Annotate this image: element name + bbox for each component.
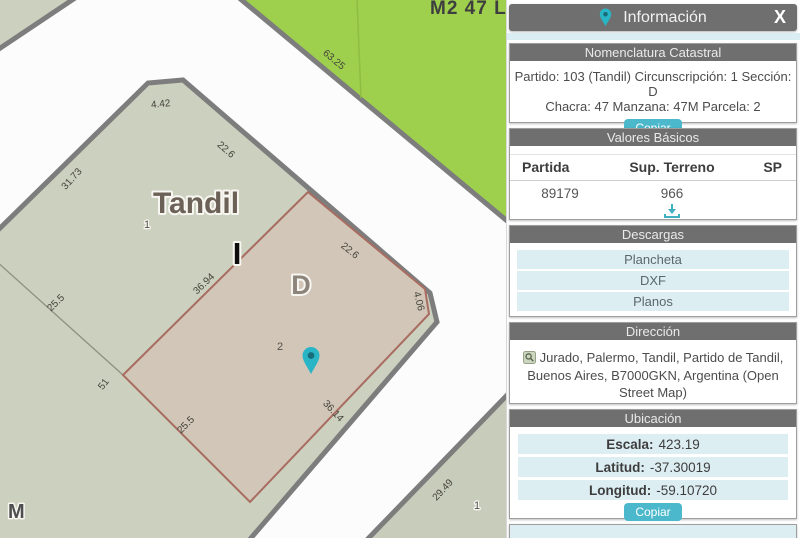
section-next-fragment [509, 524, 797, 538]
section-valores: Valores Básicos Partida Sup. Terreno SP … [509, 128, 797, 220]
dim-label-4-42: 4.42 [150, 98, 171, 111]
nomenclatura-line-1: Partido: 103 (Tandil) Circunscripción: 1… [510, 69, 796, 99]
panel-titlebar: Información X [509, 4, 797, 31]
column-partida: Partida [510, 159, 610, 175]
longitude-label: Longitud: [589, 483, 651, 498]
valores-header-row: Partida Sup. Terreno SP [510, 154, 796, 181]
partida-value: 89179 [510, 186, 610, 201]
parcel-number-selected: 2 [277, 341, 283, 353]
section-direccion: Dirección Jurado, Palermo, Tandil, Parti… [509, 322, 797, 404]
panel-title: Información [623, 9, 707, 27]
block-letter-label: I [233, 236, 242, 271]
close-button[interactable]: X [771, 7, 789, 28]
panel-top-strip [507, 33, 800, 40]
latitude-label: Latitud: [595, 460, 645, 475]
section-ubicacion: Ubicación Escala: 423.19 Latitud: -37.30… [509, 409, 797, 519]
latitude-value: -37.30019 [650, 460, 711, 475]
block-top-label: M2 47 L [430, 0, 507, 19]
copy-coordinates-button[interactable]: Copiar [624, 503, 681, 521]
parcel-number-south-block: 1 [474, 500, 480, 512]
download-icon[interactable] [664, 204, 680, 218]
section-direccion-header: Dirección [510, 323, 796, 340]
city-label: Tandil [153, 187, 239, 220]
column-sp: SP [734, 159, 796, 175]
scale-value: 423.19 [659, 437, 700, 452]
scale-row: Escala: 423.19 [518, 434, 788, 454]
cadastral-map-app: 63.25 4.42 22.6 31.73 36.94 22.6 4.06 36… [0, 0, 800, 538]
address-text: Jurado, Palermo, Tandil, Partido de Tand… [527, 350, 783, 400]
section-letter-label: D [291, 270, 311, 300]
nomenclatura-line-2: Chacra: 47 Manzana: 47M Parcela: 2 [510, 99, 796, 114]
corner-letter-label: M [8, 501, 25, 523]
valores-value-row: 89179 966 [510, 186, 796, 201]
download-planos[interactable]: Planos [517, 292, 789, 311]
section-descargas: Descargas Plancheta DXF Planos [509, 225, 797, 317]
address-search-icon [523, 351, 536, 364]
longitude-value: -59.10720 [656, 483, 717, 498]
longitude-row: Longitud: -59.10720 [518, 480, 788, 500]
section-nomenclatura-header: Nomenclatura Catastral [510, 44, 796, 61]
latitude-row: Latitud: -37.30019 [518, 457, 788, 477]
section-ubicacion-header: Ubicación [510, 410, 796, 427]
column-sup-terreno: Sup. Terreno [610, 159, 734, 175]
scale-label: Escala: [606, 437, 653, 452]
download-dxf[interactable]: DXF [517, 271, 789, 290]
sup-terreno-value: 966 [610, 186, 734, 201]
info-panel: Información X Nomenclatura Catastral Par… [506, 0, 800, 538]
section-descargas-header: Descargas [510, 226, 796, 243]
parcel-number-main-block: 1 [144, 219, 150, 231]
location-pin-icon [599, 8, 612, 27]
section-valores-header: Valores Básicos [510, 129, 796, 146]
section-nomenclatura: Nomenclatura Catastral Partido: 103 (Tan… [509, 43, 797, 123]
download-plancheta[interactable]: Plancheta [517, 250, 789, 269]
